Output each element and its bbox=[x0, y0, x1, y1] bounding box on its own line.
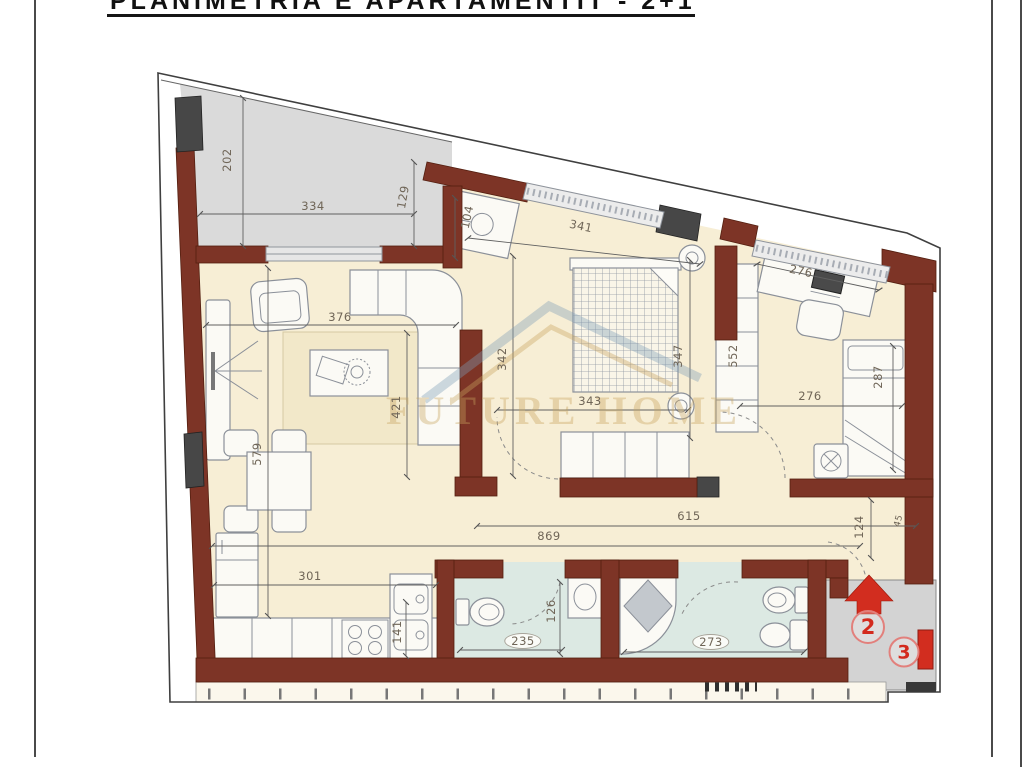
bedroom1-wardrobe bbox=[561, 432, 689, 478]
entrance-door-panel bbox=[918, 630, 933, 669]
dim-kitchen-width: 301 bbox=[298, 569, 321, 583]
corner-pillar bbox=[175, 96, 203, 152]
dim-living-height: 579 bbox=[250, 442, 264, 465]
desk-chair bbox=[795, 298, 845, 341]
dim-bedroom2-width: 276 bbox=[798, 389, 821, 403]
floor-plan: FUTURE HOME 202 334 129 104 341 376 421 … bbox=[0, 0, 1024, 767]
toilet2-icon bbox=[763, 587, 808, 613]
toilet-icon bbox=[456, 598, 504, 626]
dim-bedroom2-bed: 287 bbox=[871, 365, 885, 388]
left-pillar bbox=[184, 432, 204, 488]
dim-kitchen-side: 141 bbox=[390, 620, 404, 643]
dim-hall-long: 869 bbox=[537, 529, 560, 543]
unit-number-2: 2 bbox=[851, 610, 885, 644]
bathroom1-sink-icon bbox=[568, 578, 602, 618]
balcony-strip bbox=[196, 682, 886, 702]
dim-living-width: 376 bbox=[328, 310, 351, 324]
dim-living-inner: 421 bbox=[389, 395, 403, 418]
dim-bedroom1-right: 347 bbox=[671, 344, 685, 367]
watermark-text: FUTURE HOME bbox=[386, 388, 742, 433]
dim-hall-mid: 615 bbox=[677, 509, 700, 523]
dim-hall-side: 124 bbox=[852, 515, 866, 538]
entrance-threshold bbox=[906, 682, 936, 692]
dim-bedroom1-bottom: 343 bbox=[578, 394, 601, 408]
washing-machine-icon bbox=[814, 444, 848, 478]
dim-bedroom1-left: 342 bbox=[495, 347, 509, 370]
dim-bedroom2-wardrobe: 552 bbox=[726, 344, 740, 367]
dim-terrace-height: 202 bbox=[220, 148, 234, 171]
armchair bbox=[250, 278, 310, 333]
terrace-window bbox=[266, 247, 382, 261]
floor-plan-page: PLANIMETRIA E APARTAMENTIT - 2+1 bbox=[0, 0, 1024, 767]
dim-bathroom1-depth: 126 bbox=[544, 599, 558, 622]
unit-number-3: 3 bbox=[889, 637, 920, 668]
kitchen-sink-icon bbox=[390, 574, 432, 660]
hall-pillar bbox=[697, 477, 719, 497]
coffee-table bbox=[310, 350, 388, 396]
dim-terrace-width: 334 bbox=[301, 199, 324, 213]
single-bed bbox=[843, 340, 908, 476]
